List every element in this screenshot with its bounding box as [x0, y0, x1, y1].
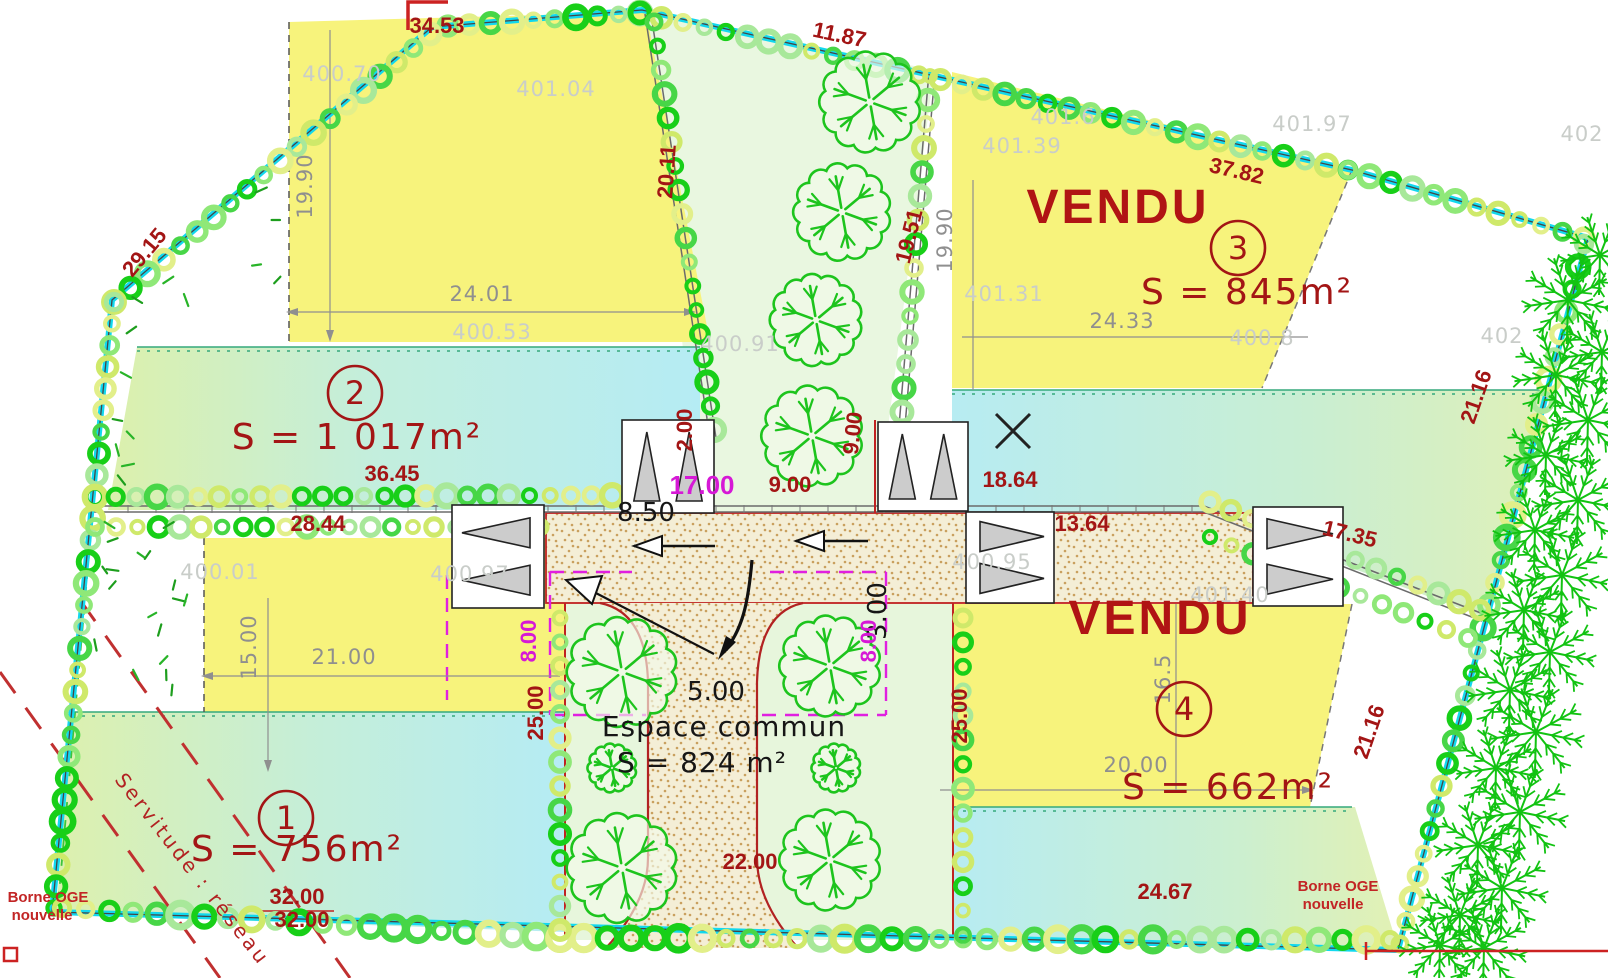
label-401-31: 401.31: [964, 282, 1043, 306]
label-s-824-m-: S = 824 m²: [617, 746, 787, 779]
access-marker-box: [878, 422, 968, 511]
label-25-00: 25.00: [523, 685, 548, 740]
label-21-16: 21.16: [1348, 701, 1390, 761]
label-21-00: 21.00: [311, 645, 376, 669]
label-18-64: 18.64: [982, 467, 1038, 492]
label-8-00: 8.00: [856, 620, 881, 663]
site-plan: 34.5329.1511.8720.1119.5137.8236.4528.44…: [0, 0, 1608, 978]
label-401-97: 401.97: [1272, 112, 1351, 136]
deciduous-tree-icon: [811, 744, 860, 793]
label-nouvelle: nouvelle: [1303, 896, 1364, 913]
label-402: 402: [1560, 122, 1603, 146]
label-22-00: 22.00: [722, 849, 777, 874]
access-marker-box: [452, 505, 544, 608]
label-400-91: 400.91: [700, 332, 779, 356]
label-8-00: 8.00: [516, 620, 541, 663]
label-24-67: 24.67: [1137, 879, 1192, 904]
label-32-00: 32.00: [269, 884, 324, 909]
label-400-8: 400.8: [1229, 326, 1294, 350]
label-vendu: VENDU: [1026, 181, 1209, 234]
label-401-39: 401.39: [982, 134, 1061, 158]
label-400-01: 400.01: [180, 560, 259, 584]
label-9-00: 9.00: [769, 472, 812, 497]
lot-number-3: 3: [1228, 229, 1248, 267]
label-402: 402: [1480, 324, 1523, 348]
label-28-44: 28.44: [290, 511, 346, 536]
label-24-01: 24.01: [449, 282, 514, 306]
label-400-97: 400.97: [430, 562, 509, 586]
label-15-00: 15.00: [237, 614, 261, 679]
label-400-95: 400.95: [952, 550, 1031, 574]
label-s-845m-: S = 845m²: [1141, 272, 1353, 313]
label-400-53: 400.53: [452, 320, 531, 344]
site-plan-svg: 34.5329.1511.8720.1119.5137.8236.4528.44…: [0, 0, 1608, 978]
label-5-00: 5.00: [687, 677, 745, 707]
label-401-40: 401.40: [1190, 583, 1269, 607]
label-24-33: 24.33: [1089, 309, 1154, 333]
conifer-tree-icon: [1504, 606, 1597, 698]
label-34-53: 34.53: [409, 13, 464, 38]
label-401-6: 401.6: [1030, 105, 1095, 129]
label-400-70: 400.70: [302, 62, 381, 86]
label-borne-oge: Borne OGE: [8, 889, 89, 906]
label-nouvelle: nouvelle: [12, 907, 73, 924]
label-36-45: 36.45: [364, 461, 419, 486]
label-19-90: 19.90: [293, 153, 317, 218]
label-25-00: 25.00: [947, 688, 972, 743]
label-8-50: 8.50: [617, 498, 675, 528]
lot-number-2: 2: [345, 374, 365, 412]
label-20-00: 20.00: [1103, 753, 1168, 777]
label-espace-commun: Espace commun: [602, 710, 846, 743]
lot-number-4: 4: [1174, 690, 1194, 728]
label-9-00: 9.00: [838, 411, 867, 456]
label-13-64: 13.64: [1054, 511, 1110, 536]
lot-number-1: 1: [276, 799, 296, 837]
label-19-90: 19.90: [933, 207, 957, 272]
label-borne-oge: Borne OGE: [1298, 878, 1379, 895]
label-s-756m-: S = 756m²: [191, 829, 403, 870]
label-32-00: 32.00: [274, 907, 329, 932]
label-s-1-017m-: S = 1 017m²: [232, 417, 482, 458]
label-16-5: 16.5: [1151, 654, 1175, 705]
label-2-00: 2.00: [672, 409, 697, 452]
label-17-00: 17.00: [669, 470, 734, 500]
label-20-11: 20.11: [652, 144, 681, 199]
label-401-04: 401.04: [516, 77, 595, 101]
